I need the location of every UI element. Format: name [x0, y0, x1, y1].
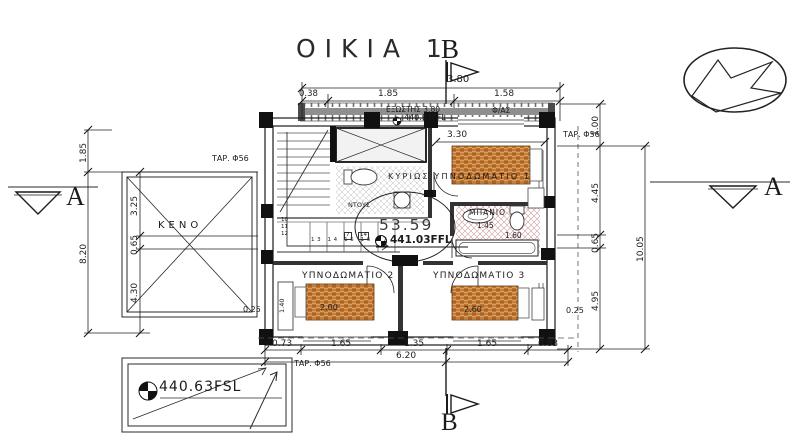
drainpipe-label-left: ΤΑΡ. Φ56	[212, 155, 249, 163]
dresser-icon	[532, 288, 544, 320]
floor-level-value: 441.03FFL	[390, 235, 452, 246]
room-label-bedroom3: ΥΠΝΟΔΩΜΑΤΙΟ 3	[433, 272, 525, 281]
room-label-bedroom2: ΥΠΝΟΔΩΜΑΤΙΟ 2	[302, 272, 394, 281]
dim-left-inner-1: 3.25	[131, 196, 140, 216]
sink-icon	[394, 192, 410, 208]
dim-bottom-seg4: 1.65	[477, 340, 497, 349]
room-label-balcony: ΕΞΩΣΤΗΣ 3.80	[386, 106, 440, 114]
dim-master-width: 3.30	[447, 131, 467, 140]
dim-left-outer-1: 1.85	[80, 143, 89, 163]
stair-number: 10	[281, 218, 288, 224]
dim-left-inner-3: 4.30	[131, 283, 140, 303]
pillow-icon	[295, 287, 306, 317]
stair-tag: 14	[358, 232, 369, 240]
ground-level-value: 440.63FSL	[159, 380, 241, 394]
north-arrow-icon	[684, 48, 786, 112]
dim-bed2: 2.00	[320, 304, 338, 312]
dim-bottom-seg3: 1.35	[404, 340, 424, 349]
balcony-level-value: 440.93FFL	[404, 114, 446, 122]
dim-bottom-seg5: 0.83	[538, 340, 558, 349]
section-label-b-bottom: B	[441, 410, 458, 435]
floor-plan-sheet: ΟΙΚΙΑ 1 B B A A 53.59 441.03FFL 440.93FF…	[0, 0, 790, 445]
dim-top-seg1: 0.38	[299, 90, 318, 99]
void-box	[122, 172, 257, 317]
dim-right-1: 1.00	[592, 116, 601, 136]
dim-right-2: 4.45	[592, 183, 601, 203]
balcony-note: Φ/ΑΣ	[492, 107, 510, 115]
page-title: ΟΙΚΙΑ 1	[296, 36, 451, 61]
dim-wall-left: 0.25	[243, 306, 261, 314]
dim-top-seg2: 1.85	[378, 90, 398, 99]
dim-left-inner-2: 0.65	[131, 235, 140, 255]
nightstand-icon	[528, 188, 544, 208]
dim-wardrobe: 1.40	[279, 299, 286, 313]
toilet-icon	[351, 169, 377, 185]
room-label-master-bedroom: ΚΥΡΙΩΣ ΥΠΝΟΔΩΜΑΤΙΟ 1	[388, 173, 531, 181]
section-label-b-top: B	[441, 36, 459, 63]
toilet-icon	[510, 212, 524, 230]
dim-bottom-total: 6.20	[396, 352, 416, 361]
floor-area-value: 53.59	[379, 218, 433, 234]
dim-bottom-seg2: 1.65	[331, 340, 351, 349]
dim-bottom-seg1: 0.73	[272, 340, 292, 349]
stair-number: 11	[281, 225, 288, 231]
section-label-a-left: A	[66, 184, 85, 210]
dim-right-3: 0.65	[592, 233, 601, 253]
dim-wall-right: 0.25	[566, 307, 584, 315]
stair-tag: 7	[344, 232, 352, 240]
bed-icon	[452, 286, 518, 320]
section-label-a-right: A	[764, 174, 783, 200]
pillow-icon	[518, 288, 529, 318]
level-marker-icon	[139, 382, 157, 400]
dim-top-total: 3.80	[447, 75, 469, 85]
dim-left-outer-2: 8.20	[80, 244, 89, 264]
dim-top-seg3: 1.58	[494, 90, 514, 99]
dim-bed3: 2.60	[464, 306, 482, 314]
dim-bathtub: 1.60	[505, 232, 522, 240]
bed-icon	[306, 284, 374, 320]
stair-number: 12	[281, 232, 288, 238]
pillow-icon	[530, 149, 542, 181]
room-label-shower: ΝΤΟΥΣ	[348, 202, 370, 209]
room-label-void: ΚΕΝΟ	[158, 221, 202, 231]
dim-right-total: 10.05	[637, 236, 646, 262]
room-label-bathroom: ΜΠΑΝΙΟ	[469, 209, 506, 217]
dim-right-4: 4.95	[592, 291, 601, 311]
dim-bathroom: 1.45	[477, 222, 494, 230]
drainpipe-label-bottom: ΤΑΡ. Φ56	[294, 360, 331, 368]
